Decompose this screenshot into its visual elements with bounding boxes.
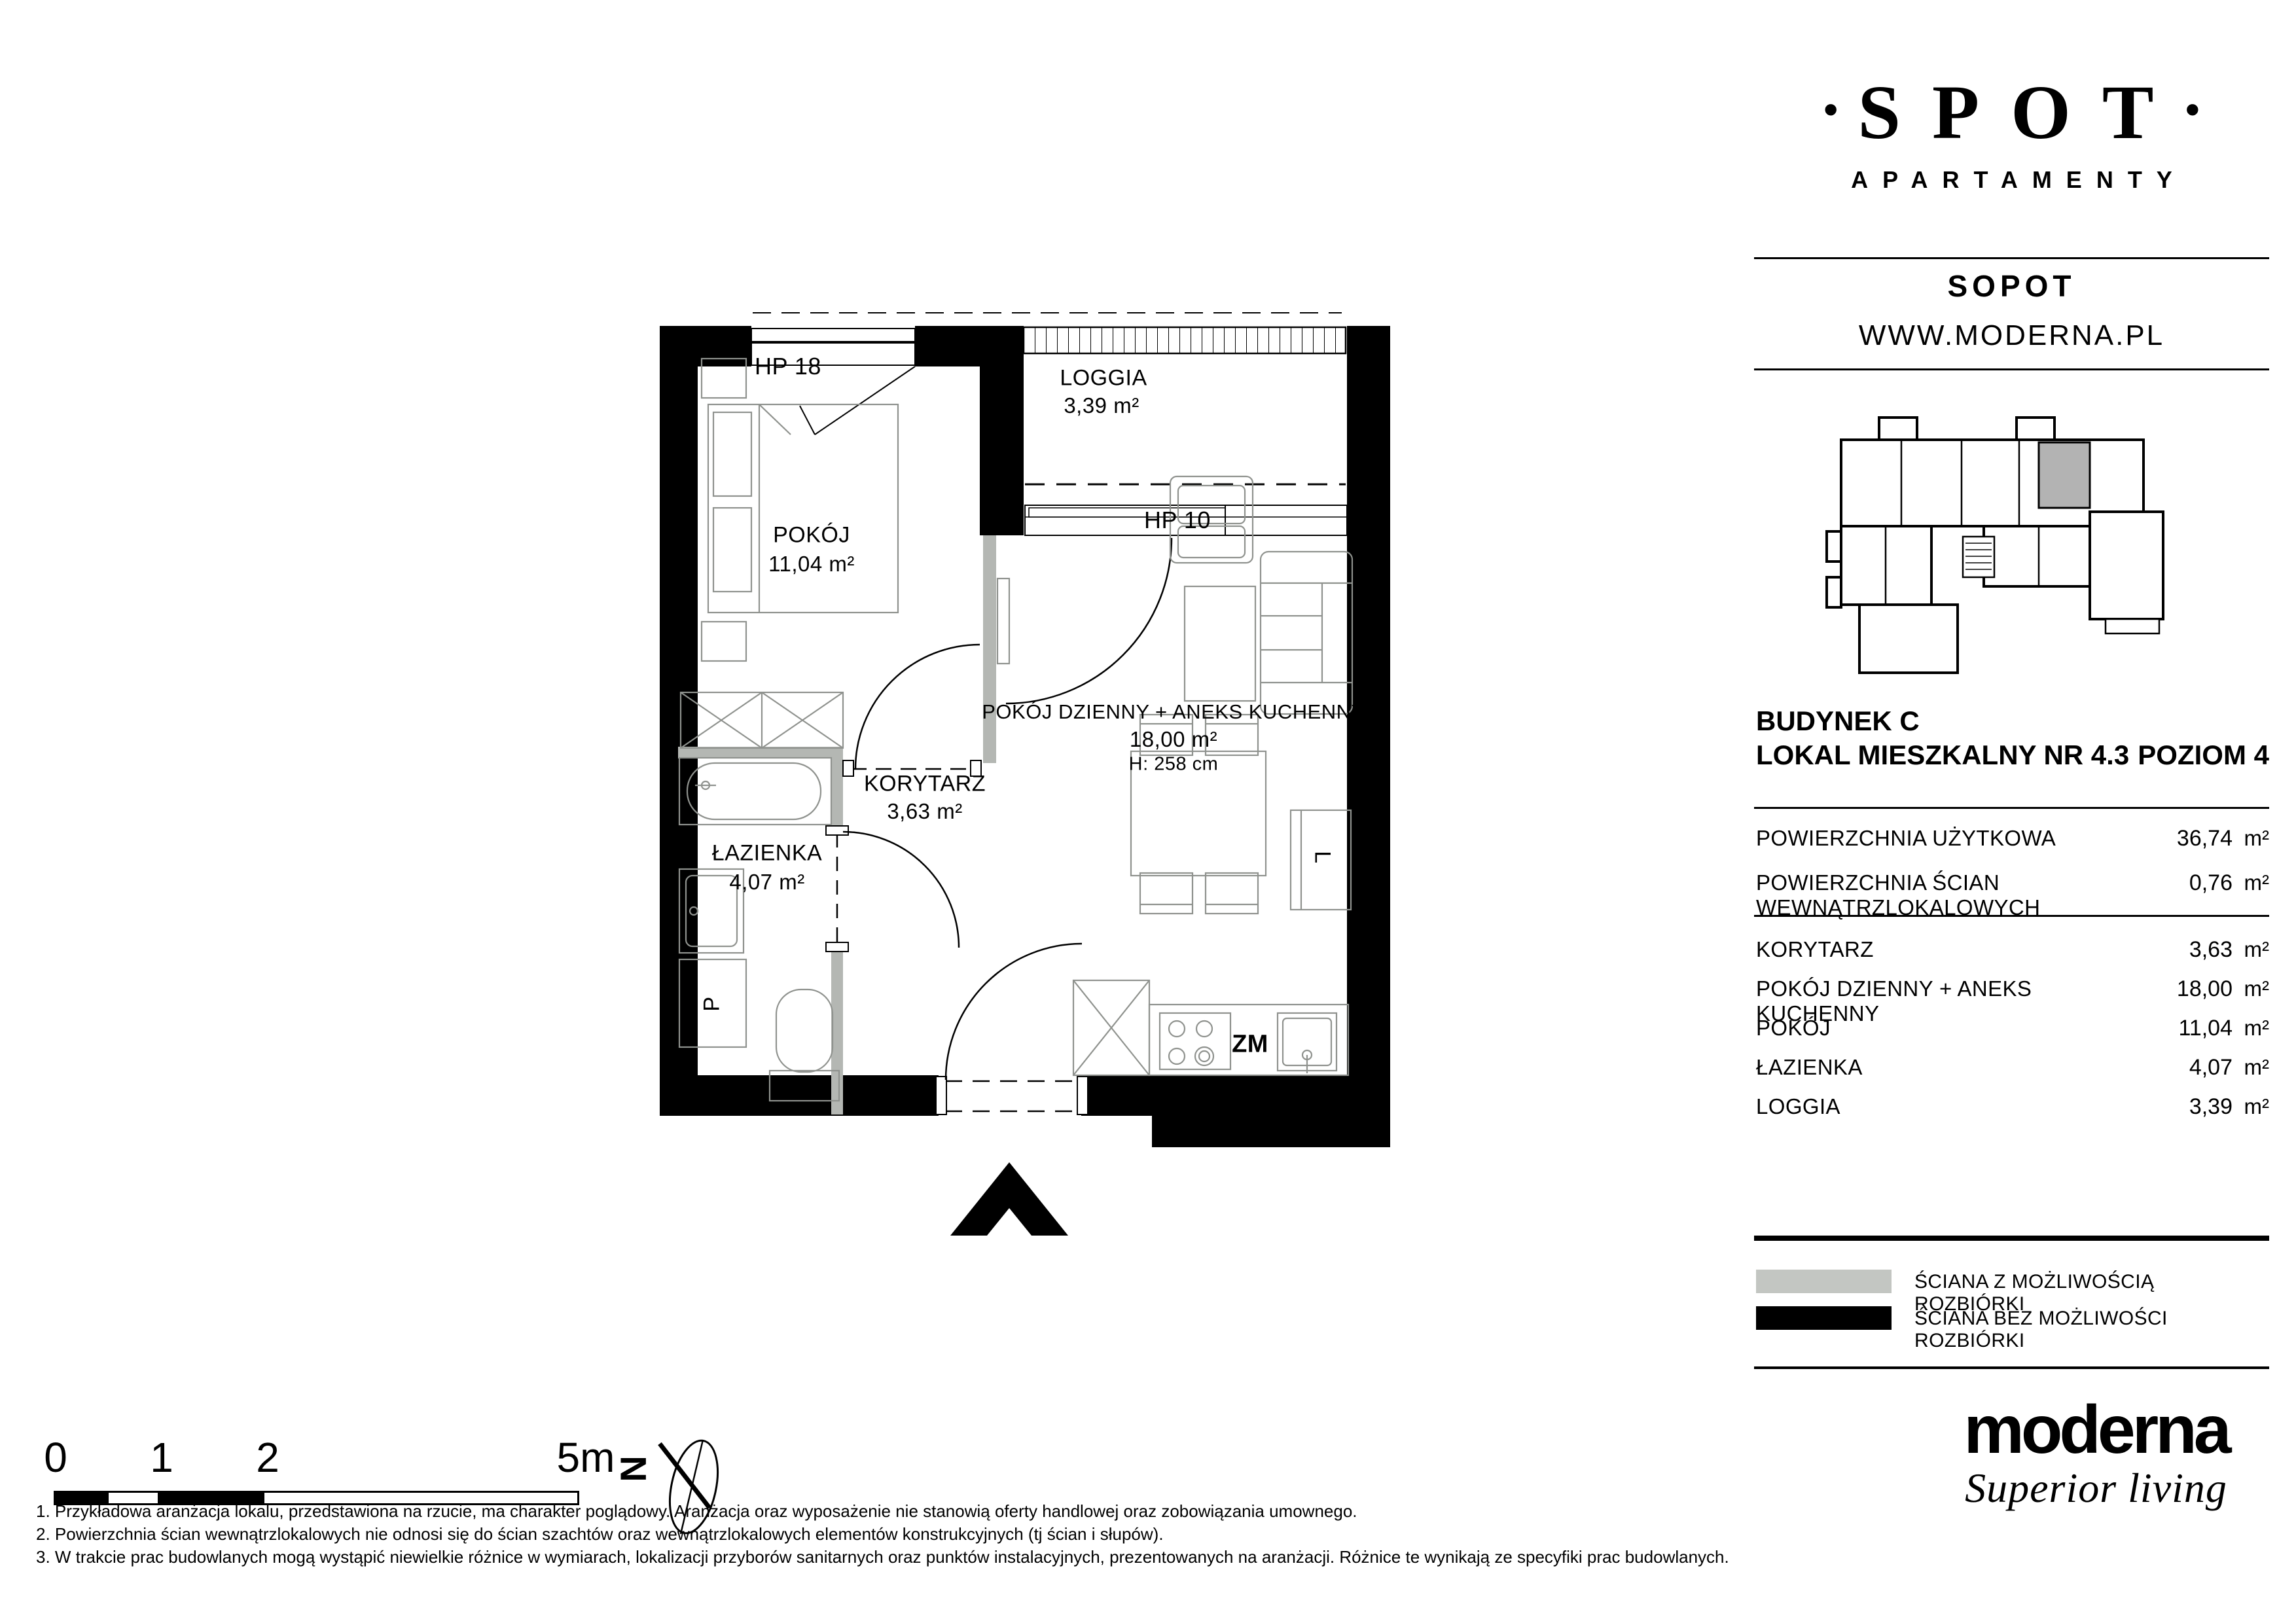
level-label: POZIOM 4 — [2138, 738, 2269, 772]
room-unit: m² — [2233, 937, 2269, 962]
room-area: 4,07 — [2134, 1055, 2233, 1080]
label-living-height: H: 258 cm — [1129, 754, 1219, 776]
divider — [1754, 368, 2269, 370]
bathtub — [679, 758, 831, 825]
room-row: ŁAZIENKA 4,07 m² — [1756, 1055, 2269, 1080]
summary-value: 36,74 — [2134, 826, 2233, 851]
window-casement-line — [815, 366, 915, 435]
bedroom-door — [843, 645, 981, 776]
room-area: 3,39 — [2134, 1094, 2233, 1120]
entrance-door — [936, 944, 1088, 1115]
summary-label: POWIERZCHNIA UŻYTKOWA — [1756, 826, 2134, 851]
label-living: POKÓJ DZIENNY + ANEKS KUCHENNY — [982, 700, 1365, 724]
label-fridge: L — [1310, 851, 1335, 863]
logo-dot: • — [1823, 86, 1838, 133]
divider — [1754, 807, 2269, 809]
loggia-door-swing — [1006, 538, 1172, 704]
room-row: LOGGIA 3,39 m² — [1756, 1094, 2269, 1120]
summary-row: POWIERZCHNIA UŻYTKOWA 36,74 m² — [1756, 826, 2269, 851]
developer-tagline: Superior living — [1921, 1464, 2271, 1512]
wardrobe — [681, 692, 843, 748]
label-loggia: LOGGIA — [1060, 366, 1147, 391]
entrance-arrow-icon — [950, 1162, 1068, 1236]
label-dishwasher: ZM — [1232, 1031, 1268, 1059]
summary-unit: m² — [2233, 826, 2269, 851]
divider-heavy — [1754, 1236, 2269, 1241]
spot-logo: •SPOT• APARTAMENTY — [1754, 68, 2269, 194]
scale-tick: 5m — [557, 1433, 615, 1482]
legend-row: ŚCIANA BEZ MOŻLIWOŚCI ROZBIÓRKI — [1756, 1306, 2269, 1331]
summary-label: POWIERZCHNIA ŚCIAN WEWNĄTRZLOKALOWYCH — [1756, 870, 2134, 920]
highlighted-unit — [2039, 442, 2090, 508]
room-area: 11,04 — [2134, 1016, 2233, 1041]
summary-value: 0,76 — [2134, 870, 2233, 896]
city-name: SOPOT — [1754, 268, 2269, 304]
label-korytarz-area: 3,63 m² — [887, 799, 962, 824]
room-name: POKÓJ — [1756, 1016, 2134, 1041]
pillow — [713, 412, 751, 496]
sofa — [1261, 552, 1352, 714]
room-area: 18,00 — [2134, 976, 2233, 1002]
room-row: KORYTARZ 3,63 m² — [1756, 937, 2269, 963]
room-unit: m² — [2233, 1016, 2269, 1041]
nightstand — [702, 622, 746, 661]
room-name: ŁAZIENKA — [1756, 1055, 2134, 1080]
window-casement-tick — [800, 406, 815, 435]
label-pokoj: POKÓJ — [773, 523, 850, 548]
label-korytarz: KORYTARZ — [864, 772, 986, 797]
room-row: POKÓJ 11,04 m² — [1756, 1016, 2269, 1041]
label-hp18: HP 18 — [755, 353, 821, 380]
loggia-railing — [1024, 327, 1346, 353]
room-unit: m² — [2233, 1094, 2269, 1119]
footnote-line: 3. W trakcie prac budowlanych mogą wystą… — [36, 1546, 2209, 1569]
legend-swatch-solid-wall — [1756, 1306, 1892, 1330]
divider — [1754, 1366, 2269, 1369]
stove — [1160, 1013, 1230, 1069]
label-loggia-area: 3,39 m² — [1064, 393, 1139, 418]
label-pokoj-area: 11,04 m² — [768, 552, 855, 577]
legend-swatch-removable-wall — [1756, 1270, 1892, 1293]
footnote-line: 2. Powierzchnia ścian wewnątrzlokalowych… — [36, 1523, 2209, 1546]
apartment-floorplan-drawing — [655, 301, 1401, 1243]
label-lazienka: ŁAZIENKA — [712, 841, 822, 866]
summary-row: POWIERZCHNIA ŚCIAN WEWNĄTRZLOKALOWYCH 0,… — [1756, 870, 2269, 920]
brand-name: SPOT — [1838, 69, 2185, 155]
divider — [1754, 257, 2269, 259]
solid-walls — [660, 326, 1390, 1147]
building-name: BUDYNEK C — [1756, 704, 2269, 738]
unit-header: BUDYNEK C LOKAL MIESZKALNY NR 4.3 POZIOM… — [1756, 704, 2269, 772]
footnote-line: 1. Przykładowa aranżacja lokalu, przedst… — [36, 1500, 2209, 1523]
logo-dot: • — [2185, 86, 2200, 133]
building-key-plan — [1823, 414, 2184, 677]
coffee-table — [1185, 586, 1255, 701]
divider — [1754, 915, 2269, 917]
summary-unit: m² — [2233, 870, 2269, 895]
label-hp10: HP 10 — [1144, 507, 1211, 534]
website-url: WWW.MODERNA.PL — [1754, 319, 2269, 352]
room-name: KORYTARZ — [1756, 937, 2134, 962]
pillow — [713, 508, 751, 592]
label-washer: P — [700, 996, 725, 1011]
brand-subtitle: APARTAMENTY — [1754, 166, 2269, 194]
developer-name: moderna — [1921, 1391, 2271, 1469]
footnotes: 1. Przykładowa aranżacja lokalu, przedst… — [36, 1500, 2209, 1569]
label-living-area: 18,00 m² — [1130, 727, 1217, 752]
scale-tick: 1 — [150, 1433, 173, 1482]
scale-tick: 0 — [44, 1433, 67, 1482]
developer-logo: moderna Superior living — [1921, 1391, 2271, 1512]
room-area: 3,63 — [2134, 937, 2233, 963]
room-unit: m² — [2233, 976, 2269, 1001]
north-letter: N — [613, 1455, 655, 1482]
scale-tick: 2 — [256, 1433, 279, 1482]
legend-row: ŚCIANA Z MOŻLIWOŚCIĄ ROZBIÓRKI — [1756, 1270, 2269, 1294]
kitchen-cabinet — [1073, 980, 1149, 1075]
room-unit: m² — [2233, 1055, 2269, 1080]
label-lazienka-area: 4,07 m² — [729, 870, 804, 895]
legend-label: ŚCIANA BEZ MOŻLIWOŚCI ROZBIÓRKI — [1914, 1308, 2269, 1352]
tv — [997, 579, 1009, 664]
floorplan-sheet: HP 18 LOGGIA 3,39 m² HP 10 POKÓJ 11,04 m… — [0, 0, 2296, 1623]
room-name: LOGGIA — [1756, 1094, 2134, 1119]
kitchen-sink — [1278, 1013, 1336, 1073]
bathroom-door — [826, 826, 959, 952]
